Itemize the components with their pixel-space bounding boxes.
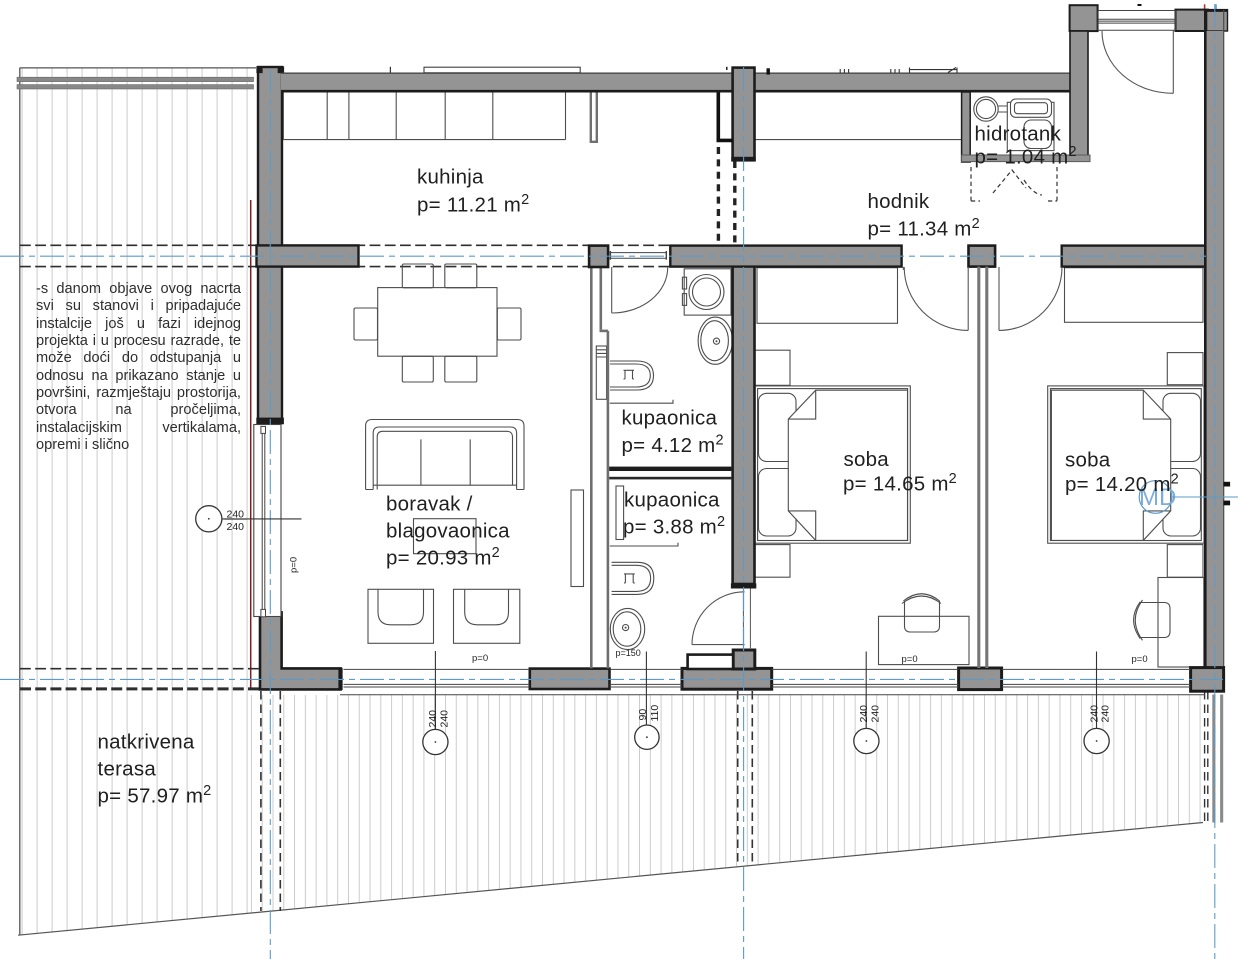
svg-text:240: 240 — [858, 705, 870, 723]
svg-text:p=0: p=0 — [289, 557, 300, 573]
svg-text:p= 11.34 m2: p= 11.34 m2 — [868, 216, 980, 241]
svg-text:soba: soba — [844, 448, 890, 471]
svg-text:p= 57.97 m2: p= 57.97 m2 — [98, 783, 212, 808]
svg-text:p= 20.93 m2: p= 20.93 m2 — [386, 545, 500, 570]
svg-text:kupaonica: kupaonica — [622, 407, 718, 430]
svg-text:hodnik: hodnik — [868, 190, 930, 213]
svg-text:240: 240 — [870, 705, 882, 723]
svg-text:p= 14.20 m2: p= 14.20 m2 — [1065, 472, 1179, 497]
svg-text:90: 90 — [637, 709, 649, 721]
svg-text:terasa: terasa — [98, 758, 157, 781]
svg-text:p= 11.21 m2: p= 11.21 m2 — [417, 192, 529, 217]
svg-text:p= 3.88 m2: p= 3.88 m2 — [623, 514, 725, 539]
svg-text:240: 240 — [427, 710, 439, 728]
svg-text:boravak /: boravak / — [386, 493, 473, 516]
svg-text:p= 14.65 m2: p= 14.65 m2 — [843, 471, 957, 496]
svg-text:soba: soba — [1065, 449, 1111, 472]
svg-text:240: 240 — [439, 710, 451, 728]
svg-text:p=150: p=150 — [616, 648, 641, 658]
svg-text:240: 240 — [1088, 705, 1100, 723]
svg-text:240: 240 — [227, 508, 245, 520]
svg-text:blagovaonica: blagovaonica — [386, 520, 510, 543]
svg-text:kupaonica: kupaonica — [624, 489, 720, 512]
svg-text:240: 240 — [227, 521, 245, 533]
svg-text:kuhinja: kuhinja — [417, 166, 484, 189]
svg-text:p= 4.12 m2: p= 4.12 m2 — [622, 433, 724, 458]
svg-text:p=0: p=0 — [1132, 654, 1148, 665]
svg-text:110: 110 — [649, 705, 661, 722]
svg-text:hidrotank: hidrotank — [975, 123, 1062, 146]
svg-text:p=0: p=0 — [902, 654, 918, 665]
svg-text:240: 240 — [1100, 705, 1112, 723]
svg-text:p= 1.04 m2: p= 1.04 m2 — [975, 144, 1077, 169]
svg-text:natkrivena: natkrivena — [98, 731, 195, 754]
svg-text:p=0: p=0 — [472, 653, 488, 664]
